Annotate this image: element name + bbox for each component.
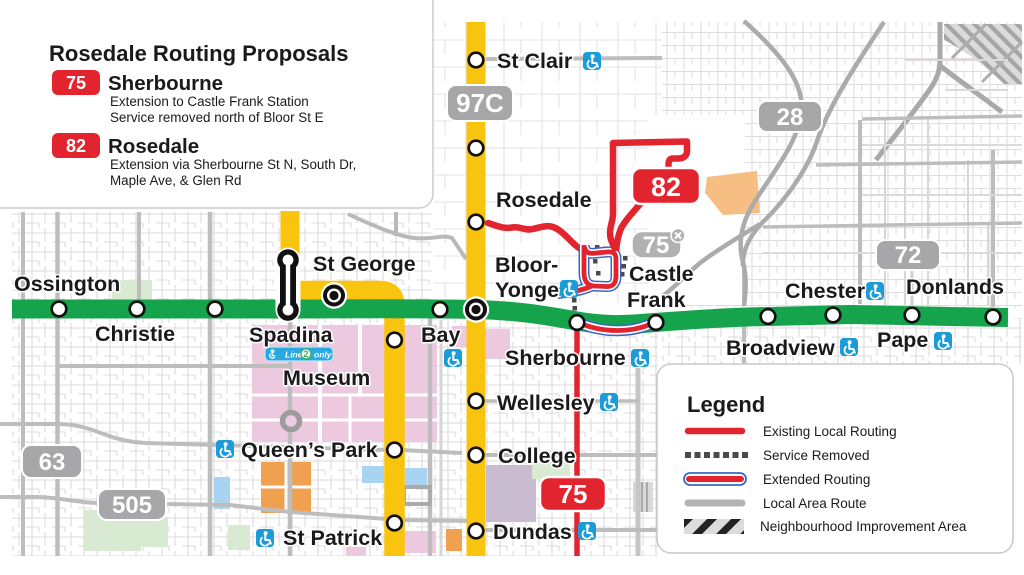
- svg-text:Extended Routing: Extended Routing: [763, 472, 870, 487]
- svg-text:Rosedale Routing Proposals: Rosedale Routing Proposals: [49, 41, 349, 66]
- svg-text:Maple Ave, & Glen Rd: Maple Ave, & Glen Rd: [110, 173, 242, 188]
- svg-text:97C: 97C: [456, 88, 504, 118]
- svg-text:Broadview: Broadview: [726, 336, 835, 360]
- svg-text:Pape: Pape: [877, 328, 928, 352]
- svg-text:Museum: Museum: [283, 366, 370, 390]
- svg-text:Christie: Christie: [95, 322, 175, 346]
- svg-text:82: 82: [66, 136, 86, 156]
- svg-text:Bloor-: Bloor-: [495, 253, 558, 277]
- svg-text:Rosedale: Rosedale: [108, 135, 199, 158]
- svg-text:Castle: Castle: [629, 262, 694, 286]
- svg-text:75: 75: [559, 479, 588, 509]
- svg-text:Sherbourne: Sherbourne: [505, 346, 626, 370]
- svg-text:Chester: Chester: [785, 279, 866, 303]
- svg-text:Service Removed: Service Removed: [763, 448, 870, 463]
- svg-text:72: 72: [895, 242, 922, 269]
- svg-text:Wellesley: Wellesley: [497, 391, 595, 415]
- svg-text:St Clair: St Clair: [497, 49, 573, 73]
- svg-text:Ossington: Ossington: [14, 272, 120, 296]
- svg-text:75: 75: [643, 232, 670, 259]
- svg-text:Existing Local Routing: Existing Local Routing: [763, 424, 897, 439]
- svg-text:Neighbourhood Improvement Area: Neighbourhood Improvement Area: [760, 519, 967, 534]
- svg-text:Legend: Legend: [687, 392, 765, 417]
- svg-text:only: only: [314, 349, 333, 359]
- svg-text:Line: Line: [285, 349, 303, 359]
- svg-text:Rosedale: Rosedale: [496, 188, 592, 212]
- svg-text:28: 28: [777, 104, 804, 131]
- svg-text:Service removed north of Bloor: Service removed north of Bloor St E: [110, 110, 324, 125]
- svg-text:Donlands: Donlands: [906, 275, 1004, 299]
- svg-text:Extension via Sherbourne St N,: Extension via Sherbourne St N, South Dr,: [110, 157, 356, 172]
- svg-text:St George: St George: [313, 252, 416, 276]
- svg-text:505: 505: [112, 492, 152, 519]
- svg-text:Sherbourne: Sherbourne: [108, 72, 223, 95]
- svg-text:Dundas: Dundas: [493, 520, 572, 544]
- svg-text:St Patrick: St Patrick: [283, 526, 382, 550]
- svg-text:75: 75: [66, 73, 86, 93]
- svg-text:Extension to Castle Frank Stat: Extension to Castle Frank Station: [110, 94, 309, 109]
- svg-text:Queen’s Park: Queen’s Park: [241, 438, 378, 462]
- svg-text:63: 63: [39, 449, 66, 476]
- svg-text:College: College: [498, 444, 576, 468]
- svg-text:Spadina: Spadina: [249, 323, 334, 347]
- svg-text:Local Area Route: Local Area Route: [763, 496, 867, 511]
- svg-text:2: 2: [303, 349, 308, 359]
- svg-text:Frank: Frank: [627, 288, 686, 312]
- svg-text:82: 82: [651, 172, 681, 202]
- svg-text:Yonge: Yonge: [495, 278, 559, 302]
- svg-text:Bay: Bay: [421, 323, 460, 347]
